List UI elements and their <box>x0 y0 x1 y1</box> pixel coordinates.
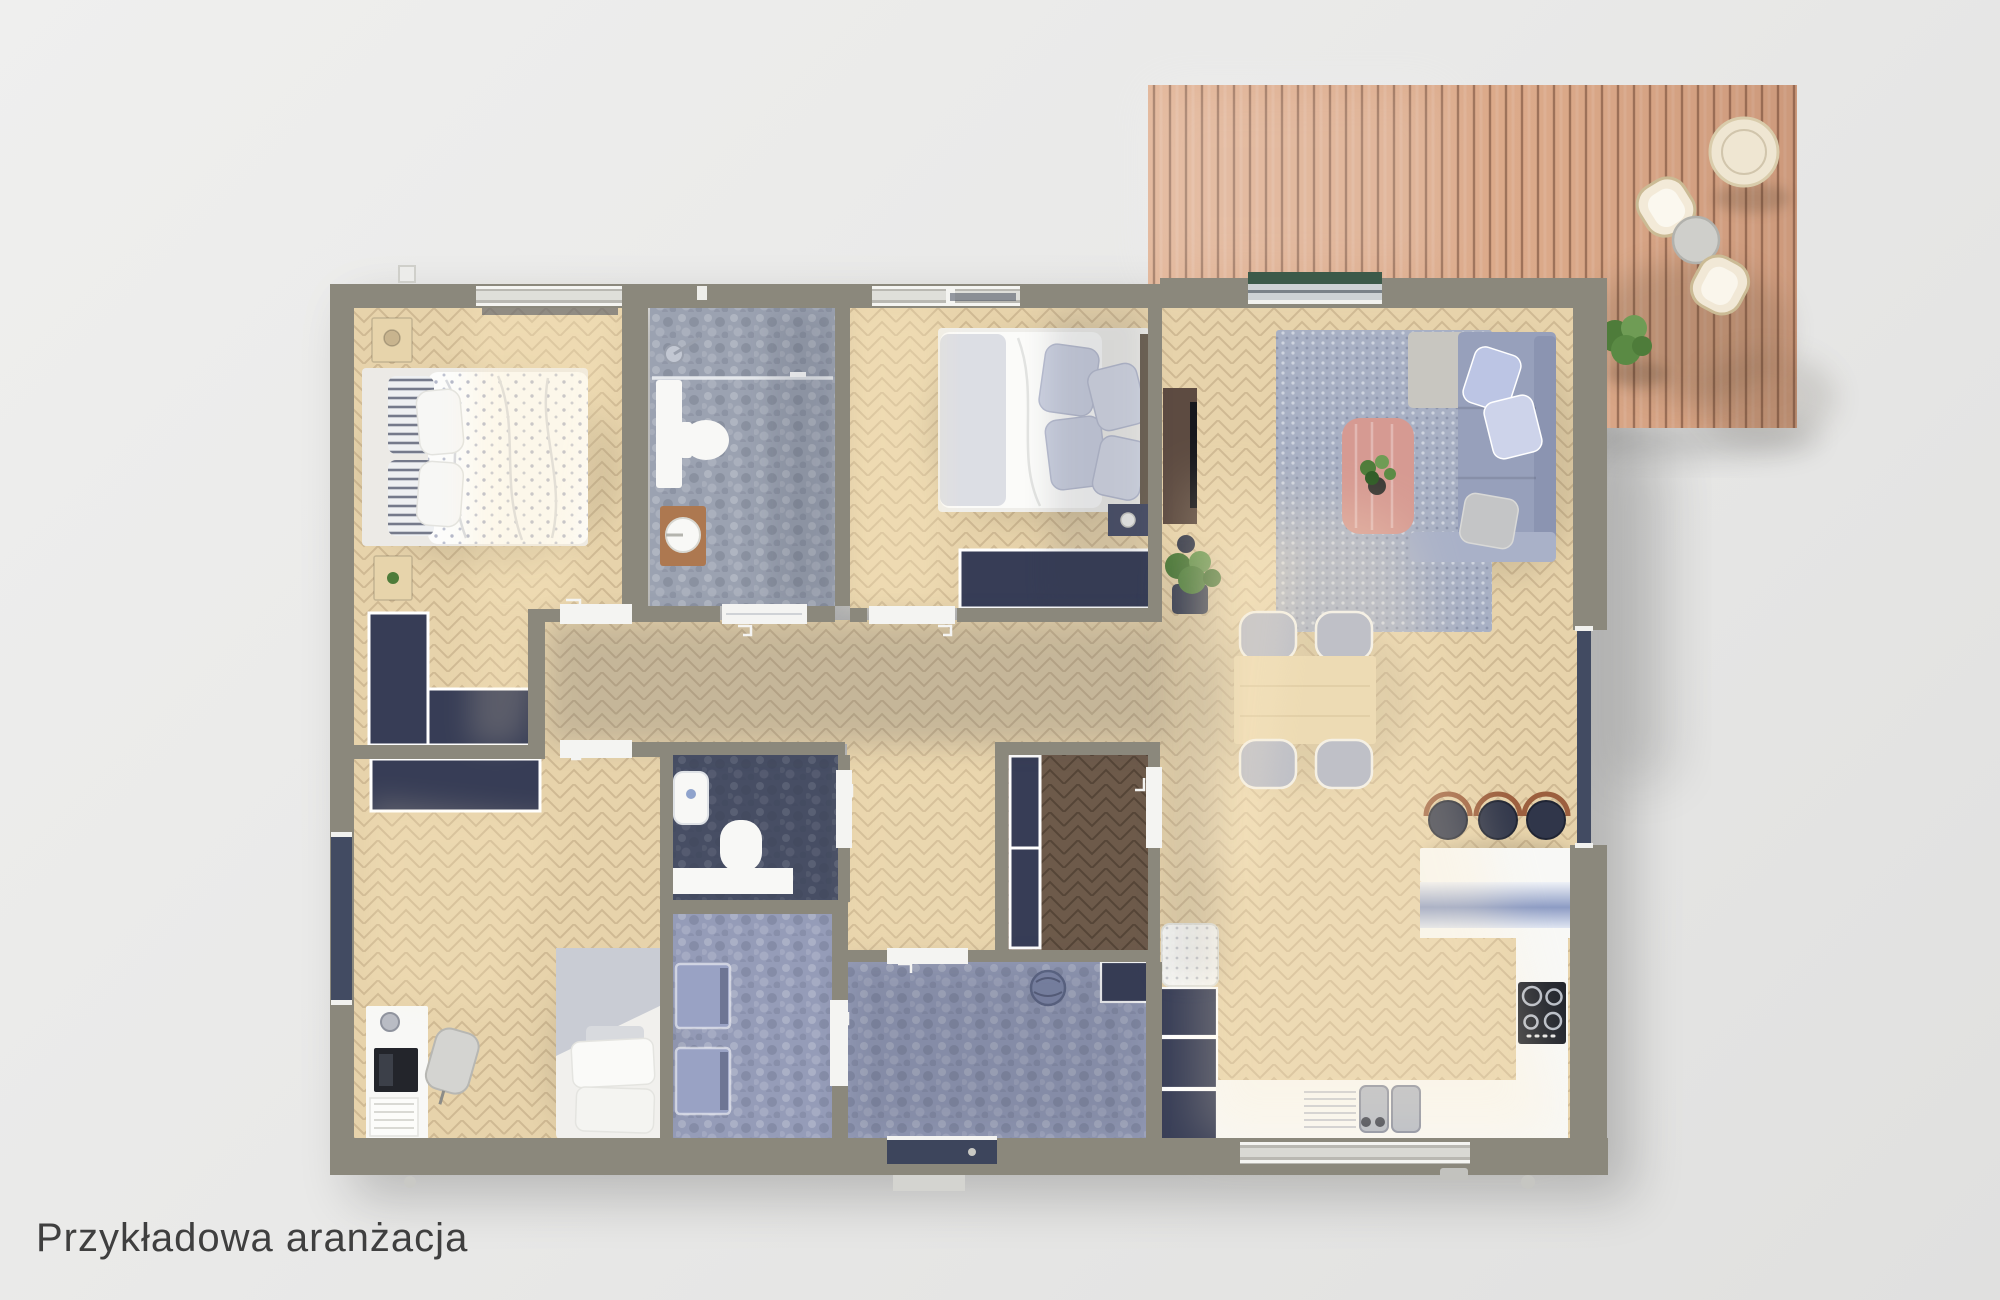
window-sill <box>1240 1160 1470 1163</box>
wall-wc-east <box>838 755 850 770</box>
bar-stool <box>1479 801 1517 839</box>
radiator <box>482 308 618 315</box>
wall-bathroom-south <box>807 606 835 622</box>
window-glass-dark <box>331 836 352 1002</box>
wall-bedroom-main-east <box>622 284 648 622</box>
wall-entrance-north <box>968 950 1160 962</box>
window-jamb <box>1575 626 1593 631</box>
wall-bedroom-main-south <box>528 609 562 622</box>
wall-wc-east <box>838 848 850 902</box>
wall-entrance-east <box>1146 962 1162 1140</box>
window-east-glazing <box>1575 626 1593 848</box>
pillow <box>415 388 464 456</box>
wall-top-living <box>1160 278 1607 308</box>
pouf-shadow <box>1714 183 1790 213</box>
terrace-shadow-patch <box>1696 353 1836 443</box>
shade-patch <box>1160 560 1220 980</box>
sliding-door-track <box>1248 290 1382 293</box>
laptop-screen <box>379 1054 393 1086</box>
door-threshold <box>560 604 632 624</box>
plant-shadow <box>1608 361 1668 387</box>
pillow <box>575 1087 654 1134</box>
door-threshold <box>1146 767 1162 848</box>
shade-patch <box>545 620 1165 745</box>
plant-leaves <box>1632 336 1652 356</box>
wall-office-north <box>330 745 545 759</box>
wall-wc-laundry <box>660 900 845 914</box>
shade-patch <box>770 310 835 606</box>
wall-west <box>330 284 354 1175</box>
wall-laundry-east <box>832 1086 848 1140</box>
bathroom-vanity <box>656 380 682 488</box>
window-jamb <box>331 1000 352 1005</box>
window-sill <box>476 286 622 289</box>
pillow <box>416 461 464 528</box>
window-glass <box>476 291 622 300</box>
wall-closet-north <box>995 742 1160 755</box>
wall-east-lower <box>1570 845 1607 1175</box>
caption: Przykładowa aranżacja <box>36 1216 468 1261</box>
sun-patch <box>852 304 940 604</box>
door-threshold <box>887 1136 997 1140</box>
window-jamb <box>331 832 352 837</box>
floor-plan-scene: Przykładowa aranżacja <box>0 0 2000 1300</box>
floor-plan-svg <box>0 0 2000 1300</box>
entrance-step <box>893 1175 965 1191</box>
wardrobe-unit <box>1010 756 1040 948</box>
window-kitchen <box>1240 1142 1470 1164</box>
wall-bedroom-main-south <box>630 609 648 622</box>
toilet <box>720 820 762 872</box>
pillow <box>571 1038 655 1088</box>
sun-patch <box>852 760 992 950</box>
door-mat <box>1248 272 1382 284</box>
window-glass <box>1240 1148 1470 1157</box>
plant-leaves <box>1365 471 1379 485</box>
window-sill <box>1240 1142 1470 1145</box>
sun-patch <box>1148 85 1448 280</box>
door-threshold <box>869 606 955 624</box>
wall-closet-east <box>1148 742 1160 767</box>
caption-text: Przykładowa aranżacja <box>36 1216 468 1260</box>
wall-closet-nook <box>528 622 545 745</box>
window-office-west <box>331 832 352 1005</box>
toilet-tank <box>680 422 692 458</box>
east-wall-shadow <box>1612 450 1674 780</box>
wall-top <box>330 284 1162 308</box>
wall-office-east <box>660 755 673 1140</box>
window-bedroom-main <box>476 286 622 315</box>
washing-machine-panel <box>720 1052 728 1110</box>
window-sill <box>476 303 622 306</box>
wall-bathroom-east <box>835 284 850 606</box>
window-jamb <box>1575 843 1593 848</box>
nightstand-tray <box>384 330 400 346</box>
outdoor-lamp <box>1521 1175 1535 1189</box>
plant-leaves <box>1384 468 1396 480</box>
door-threshold <box>887 948 968 964</box>
exterior-vent <box>1440 1168 1468 1180</box>
door-threshold <box>830 1000 848 1086</box>
washing-machine-panel <box>720 968 728 1024</box>
radiator <box>950 293 1016 301</box>
window-glass-dark <box>1577 630 1591 845</box>
blanket <box>940 334 1006 506</box>
wall-entrance-north <box>845 950 887 962</box>
roof-vent <box>399 266 415 282</box>
wall-bedroom-second-east <box>1148 284 1162 622</box>
terrace-sliding-door <box>1248 272 1382 304</box>
wall-bedroom-second-south <box>957 608 1148 622</box>
round-pouf <box>1710 118 1778 186</box>
door-handle <box>968 1148 976 1156</box>
wall-closet-east <box>1148 848 1160 962</box>
wc-counter <box>671 868 793 894</box>
washbasin-drain <box>686 789 696 799</box>
sofa-pillow <box>1458 492 1520 551</box>
built-in-wardrobe <box>369 613 428 745</box>
desk-lamp <box>381 1013 399 1031</box>
wall-wc-north <box>660 742 845 755</box>
shade-patch <box>847 962 1147 1138</box>
window-bedroom-second <box>872 286 1020 306</box>
sliding-door-frame <box>1248 300 1382 304</box>
wall-east-upper <box>1573 278 1607 630</box>
shade-patch <box>1050 306 1148 606</box>
bar-stool <box>1527 801 1565 839</box>
bathroom-vent <box>697 286 707 300</box>
walk-in-closet <box>1010 756 1040 948</box>
wall-closet-west <box>995 742 1008 962</box>
wall-bedroom-second-south <box>850 608 867 622</box>
door-leaf <box>887 1140 997 1164</box>
plant-leaves <box>1375 455 1389 469</box>
outdoor-tap <box>404 1176 416 1188</box>
nightstand-plant <box>387 572 399 584</box>
door-threshold <box>836 770 852 848</box>
wall-bathroom-south <box>648 606 720 622</box>
